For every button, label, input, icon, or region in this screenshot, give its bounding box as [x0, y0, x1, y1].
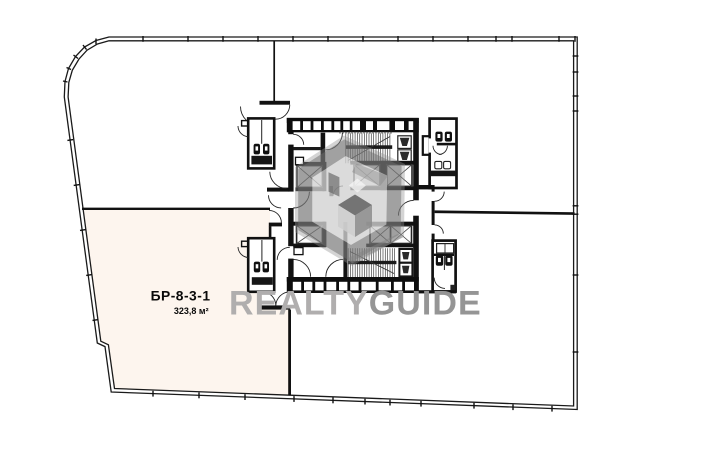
svg-text:БР-8-3-1: БР-8-3-1 — [151, 289, 211, 304]
svg-text:REALTYGUIDE: REALTYGUIDE — [229, 285, 482, 323]
svg-text:323,8 м²: 323,8 м² — [174, 306, 209, 316]
